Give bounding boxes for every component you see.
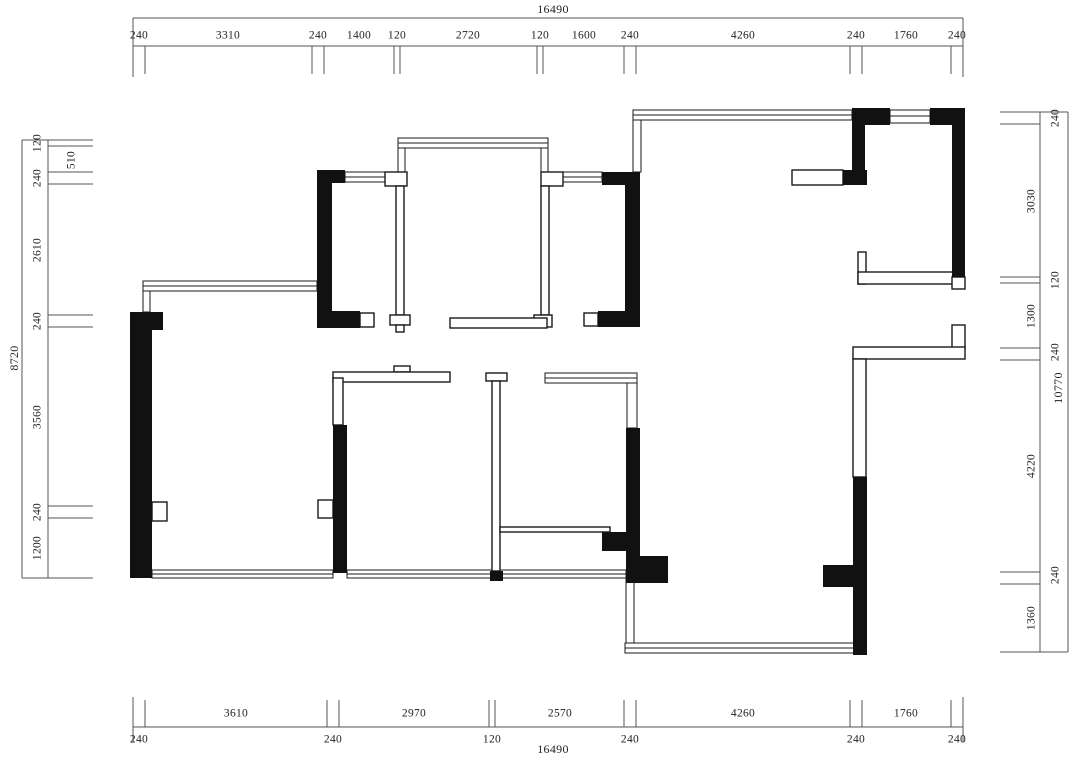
dim-top-segment-7: 1600 — [572, 30, 596, 42]
windows — [143, 110, 930, 653]
dim-left-total: 8720 — [8, 345, 20, 370]
dim-right-total: 10770 — [1052, 372, 1064, 404]
dim-bottom-below-1: 240 — [324, 734, 342, 746]
dim-top-segment-2: 240 — [309, 30, 327, 42]
dim-right-segment-7: 1360 — [1026, 606, 1038, 630]
dim-bottom-above-0: 3610 — [224, 708, 248, 720]
dim-left-segment-7: 1200 — [32, 536, 44, 560]
dim-top-segment-6: 120 — [531, 30, 549, 42]
floor-plan-canvas: 16490 240 3310 240 1400 120 2720 120 160… — [0, 0, 1080, 760]
dim-right-segment-3: 1300 — [1026, 304, 1038, 328]
dim-bottom-total: 16490 — [537, 743, 569, 755]
dim-left-segment-2: 240 — [32, 169, 44, 187]
dim-right-segment-6: 240 — [1050, 566, 1062, 584]
dim-right-segment-2: 120 — [1050, 271, 1062, 289]
dim-top-segment-0: 240 — [130, 30, 148, 42]
dim-top-segment-3: 1400 — [347, 30, 371, 42]
dim-bottom-below-4: 240 — [847, 734, 865, 746]
dim-top-segment-5: 2720 — [456, 30, 480, 42]
dim-bottom-below-0: 240 — [130, 734, 148, 746]
dim-bottom-below-5: 240 — [948, 734, 966, 746]
dim-top-segment-12: 240 — [948, 30, 966, 42]
dim-top-total: 16490 — [537, 3, 569, 15]
dim-top-segment-9: 4260 — [731, 30, 755, 42]
dim-bottom-below-2: 120 — [483, 734, 501, 746]
dim-bottom-above-2: 2570 — [548, 708, 572, 720]
dim-left-segment-3: 2610 — [32, 238, 44, 262]
dim-right-segment-5: 4220 — [1026, 454, 1038, 478]
dim-left-segment-4: 240 — [32, 312, 44, 330]
dim-bottom-above-3: 4260 — [731, 708, 755, 720]
dim-right-segment-4: 240 — [1050, 343, 1062, 361]
dim-top-segment-10: 240 — [847, 30, 865, 42]
dim-left-segment-1: 510 — [66, 151, 78, 169]
partition-walls — [152, 170, 965, 571]
dim-bottom-above-1: 2970 — [402, 708, 426, 720]
dim-right-segment-1: 3030 — [1026, 189, 1038, 213]
dim-bottom-above-4: 1760 — [894, 708, 918, 720]
floor-plan-drawing — [0, 0, 1080, 760]
dim-left-segment-6: 240 — [32, 503, 44, 521]
dim-left-segment-0: 120 — [32, 134, 44, 152]
dim-left-segment-5: 3560 — [32, 405, 44, 429]
dim-bottom-below-3: 240 — [621, 734, 639, 746]
dim-top-segment-11: 1760 — [894, 30, 918, 42]
dim-top-segment-4: 120 — [388, 30, 406, 42]
dim-top-segment-8: 240 — [621, 30, 639, 42]
dim-top-segment-1: 3310 — [216, 30, 240, 42]
dim-right-segment-0: 240 — [1050, 109, 1062, 127]
